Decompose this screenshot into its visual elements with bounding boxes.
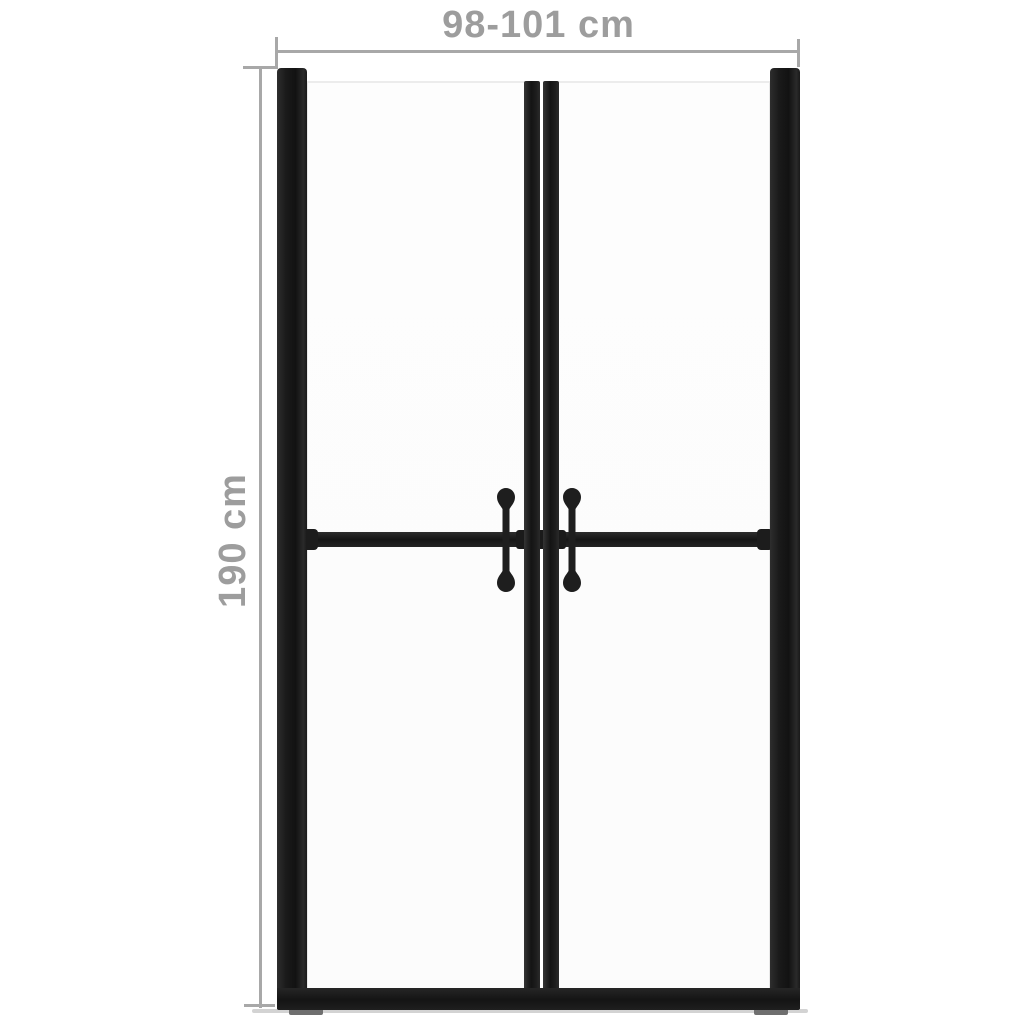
width-dimension-tick-right — [797, 39, 800, 67]
bottom-rail — [277, 988, 800, 1010]
right-wall-post — [770, 68, 800, 1010]
shower-door-dimension-diagram: 98-101 cm 190 cm — [0, 0, 1024, 1024]
height-dimension-line — [259, 66, 262, 1008]
height-dimension-tick-top — [243, 66, 277, 69]
right-door-center-stile — [543, 81, 559, 1000]
left-door-handle-icon — [492, 487, 520, 593]
height-dimension-tick-bottom — [244, 1004, 275, 1007]
width-dimension-tick-left — [275, 37, 278, 69]
height-dimension-text: 190 cm — [212, 473, 255, 608]
left-door-center-stile — [524, 81, 540, 1000]
left-wall-post — [277, 68, 307, 1010]
width-dimension-label: 98-101 cm — [277, 4, 800, 47]
right-door-handle-icon — [558, 487, 586, 593]
width-dimension-line — [277, 50, 800, 53]
right-door-handle-shape — [558, 487, 586, 593]
left-door-handle-shape — [492, 487, 520, 593]
